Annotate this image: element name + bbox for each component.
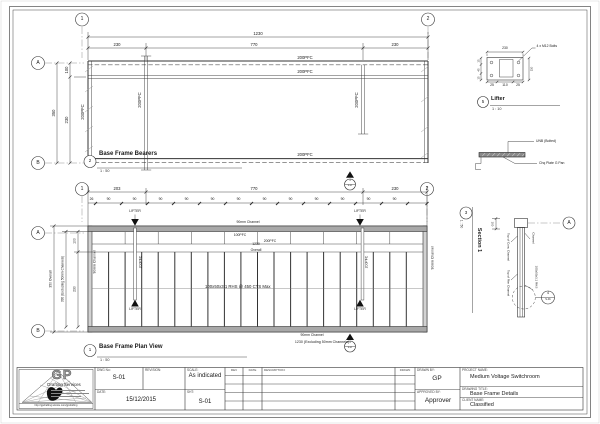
- lifter-dim-top: 230: [502, 47, 508, 50]
- dim-left-100-top: 100: [65, 67, 69, 74]
- dim-left-230-plan: 230: [73, 286, 76, 292]
- lifter-dim-r: 110: [530, 67, 533, 71]
- description-column-header: DESCRIPTION:: [264, 369, 285, 372]
- client-name-value: Classified: [470, 403, 494, 409]
- logo-contact-line: [51, 393, 89, 394]
- grid-bubble-a: A: [36, 61, 39, 66]
- approved-by-label: APPROVED BY:: [417, 391, 441, 394]
- dim-seg3-plan: 230: [392, 187, 399, 191]
- bracket-detail-linework: [476, 142, 538, 170]
- member-label-pfc-vert: 200PFC: [355, 92, 359, 107]
- dim-left-100-plan: 100: [73, 238, 76, 244]
- drawing-title-value: Base Frame Details: [470, 392, 518, 398]
- grid-bubble-2: 2: [427, 17, 430, 22]
- dim-seg2-plan: 770: [251, 187, 258, 191]
- dim-stud: 90: [367, 198, 371, 201]
- member-label-pfc-vert: 200PFC: [138, 92, 142, 107]
- logo-contact-line: [51, 396, 81, 397]
- rhs-note: 100x50x3.1 RHS @ 450 CTS Max: [205, 285, 271, 289]
- sheet-borders: [1, 1, 599, 423]
- project-name-value: Medium Voltage Switchroom: [470, 375, 540, 381]
- plan-view-number: 1: [89, 348, 92, 353]
- dim-left-230-top: 230: [65, 117, 69, 124]
- lifter-label: LIFTER: [354, 308, 366, 311]
- lifter-dim-b2: 110: [502, 84, 507, 87]
- member-label-pfc: 200PFC: [297, 56, 312, 60]
- overall-dim-line2: Overall: [251, 249, 262, 252]
- logo-contact-line: [51, 390, 85, 391]
- dim-stud: 90: [107, 198, 111, 201]
- approved-by-value: Approver: [425, 398, 451, 405]
- section-marker-num: 3: [349, 180, 350, 183]
- dwg-no-value: S-01: [113, 375, 126, 381]
- section-marker-sheet: S-01: [348, 347, 352, 349]
- dim-stud: 90: [341, 198, 345, 201]
- channel-90-label: 90mm Channel: [301, 334, 324, 337]
- section-label-channel: Channel: [531, 232, 534, 243]
- date-value: 15/12/2015: [126, 397, 156, 403]
- member-label-pfc: 200PFC: [297, 153, 312, 157]
- dim-stud: 90: [159, 198, 163, 201]
- lifter-detail-scale: 1 : 10: [492, 108, 502, 112]
- section-marker-num: 3: [349, 342, 350, 345]
- dim-seg1-plan: 203: [114, 187, 121, 191]
- date-label: DATE:: [97, 391, 106, 394]
- plan-view-title: Base Frame Plan View: [99, 344, 163, 350]
- dim-stud: 90: [289, 198, 293, 201]
- channel-90-label-vert: 90mm Channel: [431, 247, 434, 270]
- grid-bubble-a: A: [567, 221, 570, 226]
- lifter-dim-b1: 25: [490, 84, 494, 87]
- section-label-rim: Top of Rim Channel: [506, 270, 509, 296]
- logo-url: http://gpdrafting.wixsite.com/gpdrafting: [35, 405, 78, 408]
- sheet-value: S-01: [199, 399, 212, 405]
- revision-label: REVISION:: [145, 369, 161, 372]
- member-label-pfc-vert: 200PFC: [81, 104, 85, 119]
- lifter-detail-linework: [478, 48, 561, 108]
- grid-bubble-1: 1: [81, 187, 84, 192]
- drawn-by-label: DRAWN BY:: [417, 369, 435, 372]
- detail-bubble-sheet: S-01: [545, 299, 550, 302]
- dim-stud: 90: [237, 198, 241, 201]
- lifter-dim-l3: 15: [478, 76, 481, 79]
- dim-stud: 90: [211, 198, 215, 201]
- section-number: 3: [465, 211, 468, 216]
- top-view-linework: [32, 13, 435, 170]
- lifter-dim-l1: 15: [478, 59, 481, 62]
- project-name-label: PROJECT NAME:: [462, 369, 488, 372]
- lifter-label: LIFTER: [354, 210, 366, 213]
- section-label-conc: Top of Conc Channel: [506, 233, 509, 261]
- grid-bubble-b: B: [36, 329, 39, 334]
- pfc100-label: 100PFC: [234, 234, 246, 237]
- detail-bubble-number: 4: [547, 292, 549, 296]
- pfc200-label: 200PFC: [264, 240, 276, 243]
- dim-seg3-top: 230: [392, 43, 399, 47]
- lifter-dim-l2: 45: [478, 68, 481, 71]
- drawn-column-header: DRAWN: [400, 369, 410, 372]
- dim-stud-first: 26: [90, 198, 94, 201]
- dim-overall-top: 1230: [253, 32, 262, 36]
- section-view-linework: [460, 207, 575, 317]
- dwg-no-label: DWG No:: [97, 369, 111, 372]
- grid-bubble-a: A: [36, 231, 39, 236]
- lifter-label: LIFTER: [129, 308, 141, 311]
- logo-gp: GP: [52, 368, 73, 381]
- bracket-label-1: UNB (Bolted): [536, 140, 556, 143]
- lifter-bolt-note: 4 x M12 Bolts: [537, 45, 558, 48]
- grid-bubble-b: B: [36, 161, 39, 166]
- date-column-header: DATE: [249, 369, 257, 372]
- top-view-scale: 1 : 50: [100, 170, 110, 174]
- dim-seg2-top: 770: [251, 43, 258, 47]
- drawing-linework: [0, 0, 600, 424]
- drawn-by-value: GP: [432, 376, 441, 383]
- grid-bubble-2: 2: [426, 187, 429, 192]
- bracket-label-2: Chq Plate G Pan: [539, 162, 564, 165]
- channel-90-label-vert: 90mm Channel: [93, 251, 96, 274]
- dim-left-outer-top: 350: [52, 110, 56, 117]
- section-title: Section 1: [475, 228, 481, 252]
- overall-dim-line1: 1230: [252, 243, 260, 246]
- section-scale: 1 : 50: [459, 220, 462, 228]
- top-view-title: Base Frame Bearers: [99, 151, 157, 157]
- dim-stud: 90: [185, 198, 189, 201]
- logo-name: Drafting Services: [47, 383, 80, 387]
- pfc200-label-vert: 200PFC: [139, 256, 142, 268]
- sheet-label: SHT:: [187, 391, 194, 394]
- plan-view-scale: 1 : 50: [100, 359, 110, 363]
- lifter-detail-number: 5: [482, 100, 485, 105]
- section-label-rhs: 100x50x3.1 RHS: [535, 266, 538, 289]
- lifter-detail-title: Lifter: [491, 97, 505, 103]
- plan-bottom-note: 1230 (Excluding 50mm Channels): [295, 341, 349, 345]
- lifter-dim-b3: 25: [516, 84, 520, 87]
- channel-90-label: 90mm Channel: [237, 221, 260, 224]
- dim-stud: 90: [315, 198, 319, 201]
- dim-stud: 90: [393, 198, 397, 201]
- lifter-label: LIFTER: [129, 210, 141, 213]
- section-marker-sheet: S-01: [348, 185, 352, 187]
- scale-value: As indicated: [187, 373, 223, 381]
- rev-column-header: REV: [231, 369, 237, 372]
- dim-left-outer-plan: 350 Overall: [49, 270, 52, 287]
- dim-stud: 90: [263, 198, 267, 201]
- drawing-sheet: { "view_bubbles": {"v1": "1", "v2": "2",…: [0, 0, 600, 424]
- member-label-pfc: 200PFC: [297, 70, 312, 74]
- dim-stud: 90: [133, 198, 137, 201]
- pfc200-label-vert: 200PFC: [365, 256, 368, 268]
- dim-seg1-top: 230: [114, 43, 121, 47]
- dim-left-excl-plan: 330 (Excluding 50mm Channels): [61, 256, 64, 302]
- section-dim-100: 100: [491, 222, 494, 227]
- grid-bubble-1: 1: [81, 17, 84, 22]
- top-view-number: 2: [89, 159, 92, 164]
